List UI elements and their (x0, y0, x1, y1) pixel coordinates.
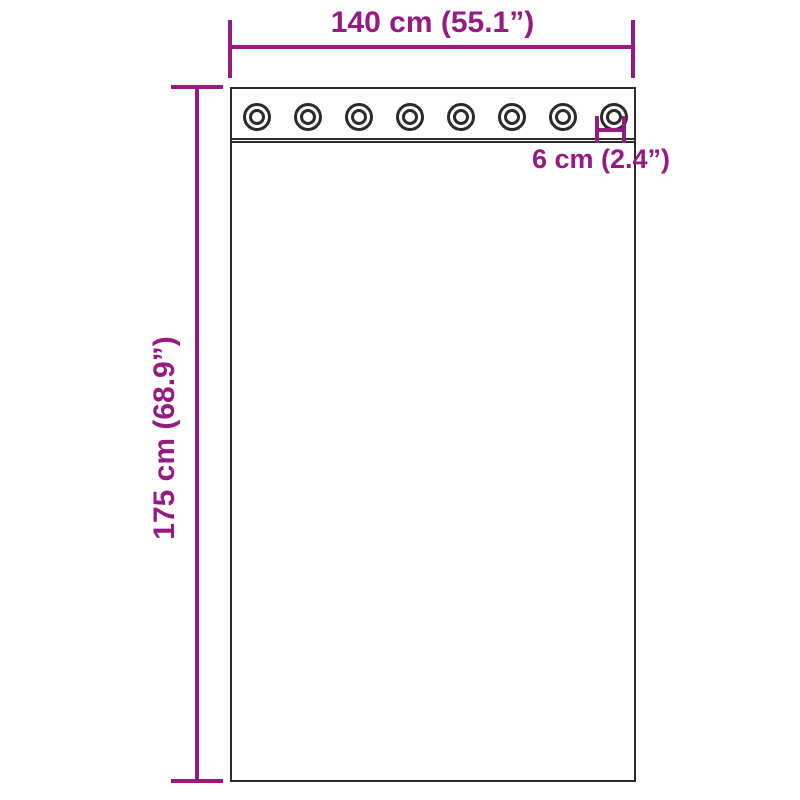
grommet-hole-icon (351, 109, 367, 125)
height-dimension-label: 175 cm (68.9”) (149, 288, 181, 588)
height-dimension-tick-top (171, 85, 223, 89)
width-dimension-label: 140 cm (55.1”) (230, 6, 635, 40)
grommet-dimension-tick-left (595, 116, 599, 143)
diagram-canvas: 140 cm (55.1”) 175 cm (68.9”) 6 cm (2.4”… (0, 0, 800, 800)
grommet-icon (498, 103, 526, 131)
width-dimension-line (230, 45, 635, 49)
grommet-icon (243, 103, 271, 131)
grommet-icon (294, 103, 322, 131)
grommet-dimension-tick-right (622, 116, 626, 143)
grommet-icon (447, 103, 475, 131)
height-dimension-tick-bottom (171, 779, 223, 783)
grommet-hole-icon (300, 109, 316, 125)
grommet-dimension-bar (597, 128, 625, 132)
grommet-dimension-label: 6 cm (2.4”) (470, 144, 670, 175)
grommet-hole-icon (504, 109, 520, 125)
curtain-panel (230, 87, 636, 782)
grommet-hole-icon (249, 109, 265, 125)
grommet-row (232, 89, 634, 138)
grommet-hole-icon (453, 109, 469, 125)
height-dimension-line (195, 87, 199, 783)
grommet-hole-icon (606, 109, 622, 125)
grommet-icon (396, 103, 424, 131)
grommet-hole-icon (402, 109, 418, 125)
grommet-hole-icon (555, 109, 571, 125)
header-seam-line (232, 138, 634, 143)
grommet-icon (345, 103, 373, 131)
grommet-icon (549, 103, 577, 131)
